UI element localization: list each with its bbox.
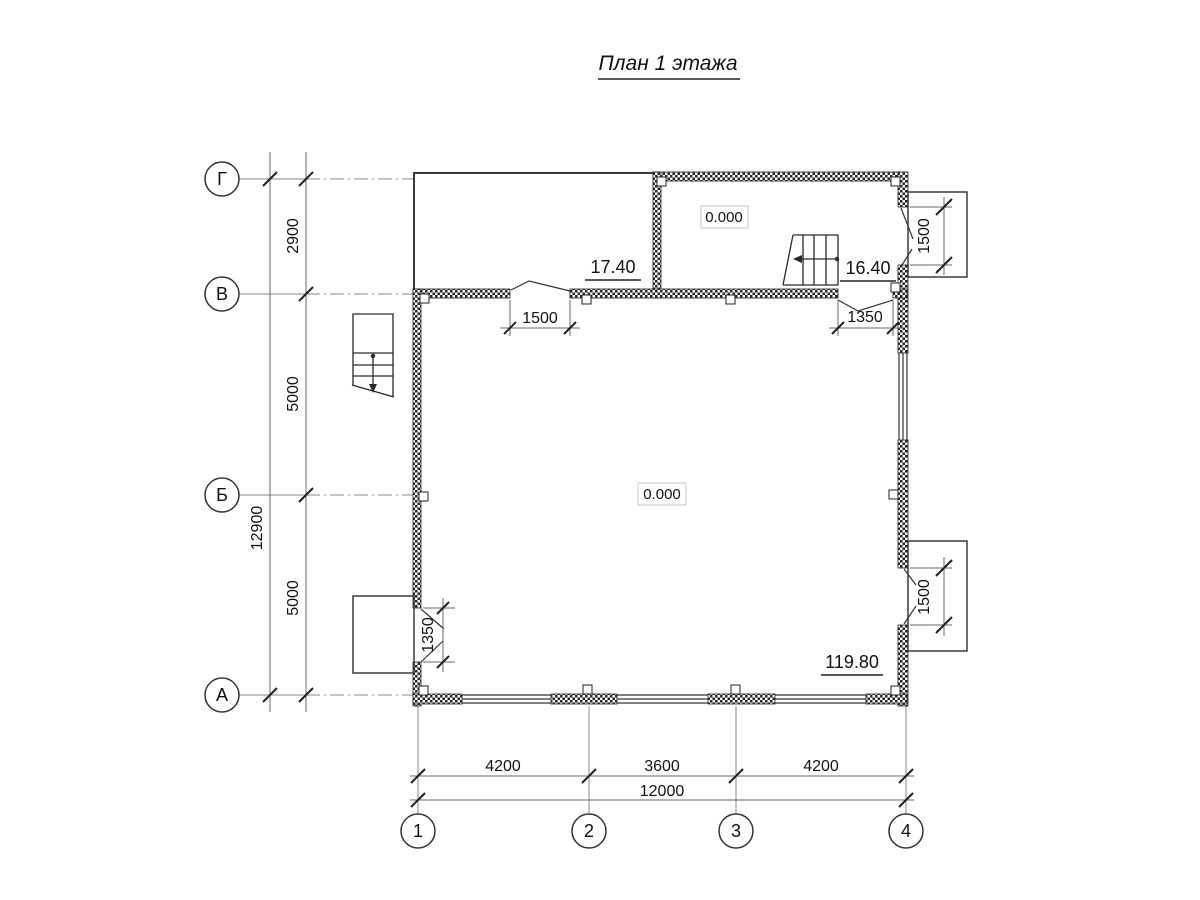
floor-plan-drawing: План 1 этажа 2900 [0, 0, 1200, 900]
door-swing-v-left [511, 281, 570, 291]
walls [413, 172, 908, 706]
dim-row-total: 12900 [249, 506, 266, 551]
stairs-break-line-hall [783, 235, 793, 285]
column-marker [889, 490, 898, 499]
stairs-exterior-left [352, 314, 394, 397]
dim-row-spacing-0: 2900 [285, 218, 302, 254]
window-bottom-1 [462, 695, 551, 703]
stairs-start-dot-hall [835, 257, 839, 261]
column-marker [891, 283, 900, 292]
stairs-hall [783, 235, 839, 285]
wall-right-seg2 [898, 440, 908, 568]
dim-door-left-wall-text: 1350 [420, 617, 437, 653]
door-swings [421, 208, 916, 662]
dim-door-left-wall: 1350 [420, 598, 455, 672]
wall-v-seg2 [570, 289, 838, 298]
row-axis-lines [239, 179, 414, 695]
left-dimensions: 2900 5000 5000 12900 [249, 152, 313, 712]
column-marker [420, 294, 429, 303]
dim-porch-bottom-right-text: 1500 [916, 579, 933, 615]
bottom-dimensions: 4200 3600 4200 12000 [410, 758, 914, 807]
axis-label-v: В [216, 284, 228, 304]
area-terrace: 17.40 [590, 257, 635, 277]
axis-label-a: А [216, 685, 228, 705]
drawing-title: План 1 этажа [598, 52, 740, 79]
axis-label-g: Г [217, 169, 227, 189]
column-marker [891, 686, 900, 695]
axis-label-2: 2 [584, 821, 594, 841]
window-bottom-2 [617, 695, 708, 703]
dim-door-v-right: 1350 [829, 300, 902, 336]
dim-door-v-right-text: 1350 [847, 309, 883, 326]
col-axis-bubbles: 1 2 3 4 [401, 814, 923, 848]
dim-row-spacing-2: 5000 [285, 580, 302, 616]
stairs-start-dot [371, 354, 375, 358]
windows [462, 353, 907, 703]
column-marker [583, 685, 592, 694]
wall-a-seg2 [551, 694, 617, 704]
column-marker [891, 177, 900, 186]
axis-label-3: 3 [731, 821, 741, 841]
dim-row-spacing-1: 5000 [285, 376, 302, 412]
dim-porch-top-right: 1500 [910, 197, 952, 275]
column-marker [582, 295, 591, 304]
dim-porch-top-right-text: 1500 [916, 218, 933, 254]
column-marker [419, 492, 428, 501]
dim-col-spacing-1: 3600 [644, 758, 680, 775]
column-marker [419, 686, 428, 695]
porch-bottom-left [353, 596, 414, 673]
wall-a-seg4 [866, 694, 907, 704]
dim-door-v-left: 1500 [500, 300, 580, 336]
window-right-wall [899, 353, 907, 440]
page-title: План 1 этажа [598, 52, 737, 75]
wall-right-seg1 [898, 298, 908, 353]
wall-a-seg3 [708, 694, 775, 704]
wall-top-g [653, 172, 907, 181]
window-bottom-3 [775, 695, 866, 703]
axis-label-4: 4 [901, 821, 911, 841]
column-marker [726, 295, 735, 304]
dim-porch-bottom-right: 1500 [910, 557, 952, 636]
level-main-text: 0.000 [643, 486, 681, 503]
axis-label-1: 1 [413, 821, 423, 841]
stairs-arrowhead-hall [793, 255, 802, 263]
wall-left-upper [413, 289, 421, 608]
axis-label-b: Б [216, 485, 228, 505]
column-marker [657, 177, 666, 186]
column-marker [731, 685, 740, 694]
row-axis-bubbles: Г В Б А [205, 162, 239, 712]
wall-interior-hall [653, 172, 661, 298]
door-swing-main-porch [904, 569, 916, 624]
level-hall-text: 0.000 [705, 209, 743, 226]
dim-col-total: 12000 [640, 783, 685, 800]
floor-plan-page: План 1 этажа 2900 [0, 0, 1200, 900]
door-swing-hall-porch [901, 208, 913, 265]
dim-col-spacing-2: 4200 [803, 758, 839, 775]
area-hall: 16.40 [845, 258, 890, 278]
dim-col-spacing-0: 4200 [485, 758, 521, 775]
dim-door-v-left-text: 1500 [522, 310, 558, 327]
area-main: 119.80 [825, 652, 879, 672]
